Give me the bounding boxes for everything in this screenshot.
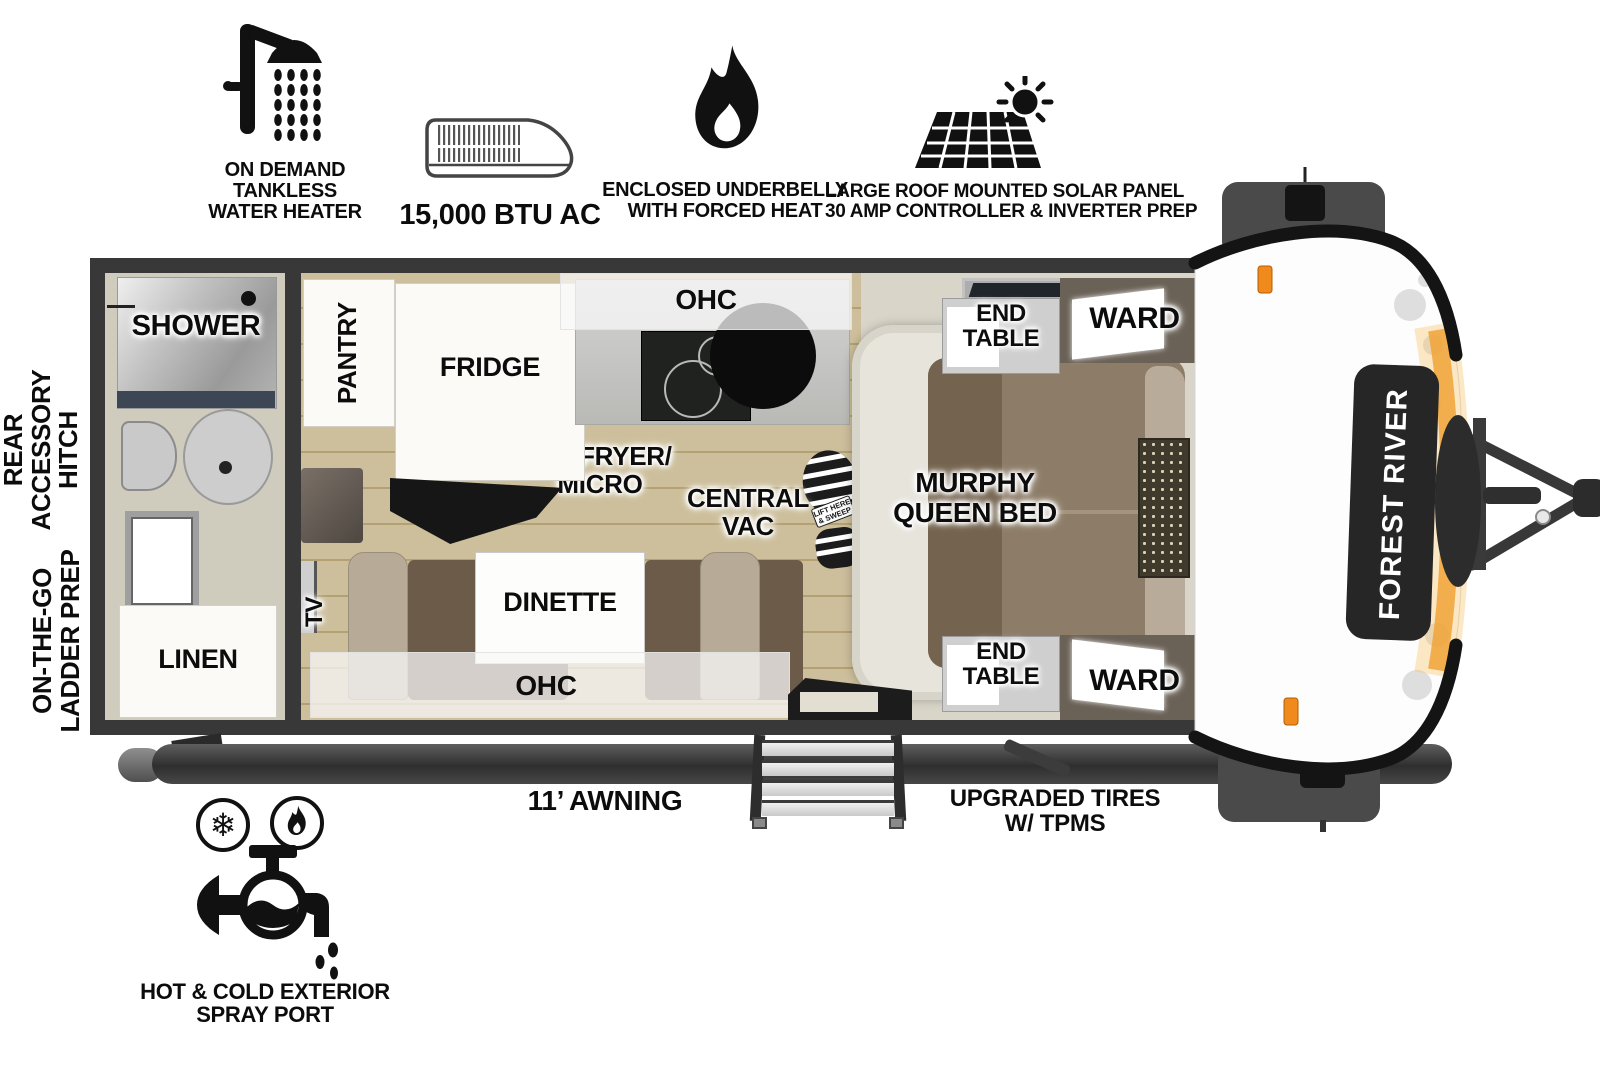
entry-door-floor	[800, 692, 878, 712]
solar-panel-icon	[905, 76, 1055, 176]
step-foot-left	[752, 817, 767, 829]
murphy-bed-label: MURPHY QUEEN BED	[865, 468, 1085, 527]
awning-label: 11’ AWNING	[440, 786, 770, 816]
bath-window	[125, 511, 199, 611]
tires-label: UPGRADED TIRES W/ TPMS	[925, 786, 1185, 837]
underbelly-label: ENCLOSED UNDERBELLY WITH FORCED HEAT	[600, 180, 850, 222]
bathroom-zone: SHOWER LINEN	[105, 273, 285, 720]
kitchen-ohc-label: OHC	[631, 285, 781, 315]
toilet-flush	[219, 461, 232, 474]
solar-label: LARGE ROOF MOUNTED SOLAR PANEL 30 AMP CO…	[825, 182, 1115, 222]
end-table-front-label: END TABLE	[934, 301, 1068, 352]
dinette-label: DINETTE	[475, 588, 645, 617]
shower-label: SHOWER	[117, 311, 275, 342]
bath-sink	[121, 421, 177, 491]
propane-tank	[1435, 415, 1481, 587]
end-table-rear-label: END TABLE	[934, 639, 1068, 690]
snowflake-icon: ❄	[210, 807, 237, 843]
rv-floorplan-diagram: ON DEMAND TANKLESS WATER HEATER 15,000 B…	[0, 0, 1600, 1070]
fridge	[395, 283, 585, 481]
furnace-flame-icon	[682, 38, 777, 166]
ac-label: 15,000 BTU AC	[370, 200, 630, 231]
hitch-assembly	[1435, 415, 1600, 587]
hitch-pin	[1536, 510, 1550, 524]
brand-panel: FOREST RIVER	[1345, 364, 1440, 642]
runner-rug	[1138, 438, 1190, 578]
step-tread-2	[762, 760, 894, 776]
step-tread-4	[762, 800, 894, 816]
pantry-label: PANTRY	[334, 283, 364, 423]
fridge-label: FRIDGE	[395, 353, 585, 382]
toilet	[183, 409, 273, 505]
shower-drain	[241, 291, 256, 306]
step-tread-3	[762, 780, 894, 796]
marker-light-top	[1258, 266, 1272, 293]
shower-glass	[117, 391, 275, 408]
water-heater-label: ON DEMAND TANKLESS WATER HEATER	[185, 160, 385, 224]
spray-port-label: HOT & COLD EXTERIOR SPRAY PORT	[120, 980, 410, 1027]
shower-arm	[107, 305, 135, 308]
coupler	[1573, 479, 1600, 517]
linen-label: LINEN	[119, 645, 277, 674]
main-zone: LIFT HERE & SWEEP CENTRAL VAC AIR FRYER/…	[301, 273, 1217, 720]
step-foot-right	[889, 817, 904, 829]
tankless-water-heater-icon	[222, 22, 347, 157]
trailer-front-cap: FOREST RIVER	[1185, 165, 1600, 835]
spray-port-icon: ❄	[185, 795, 360, 980]
entry-mat	[301, 468, 363, 543]
ladder-prep-label: ON-THE-GO LADDER PREP	[29, 521, 87, 761]
ac-unit-icon	[418, 110, 578, 195]
tv-label: TV	[302, 582, 328, 642]
floorplan-frame: SHOWER LINEN	[90, 258, 1232, 735]
entry-steps	[752, 735, 904, 829]
marker-light-bottom	[1284, 698, 1298, 725]
bathroom-wall	[285, 273, 301, 720]
dinette-ohc-label: OHC	[461, 671, 631, 701]
step-tread-1	[762, 740, 894, 756]
